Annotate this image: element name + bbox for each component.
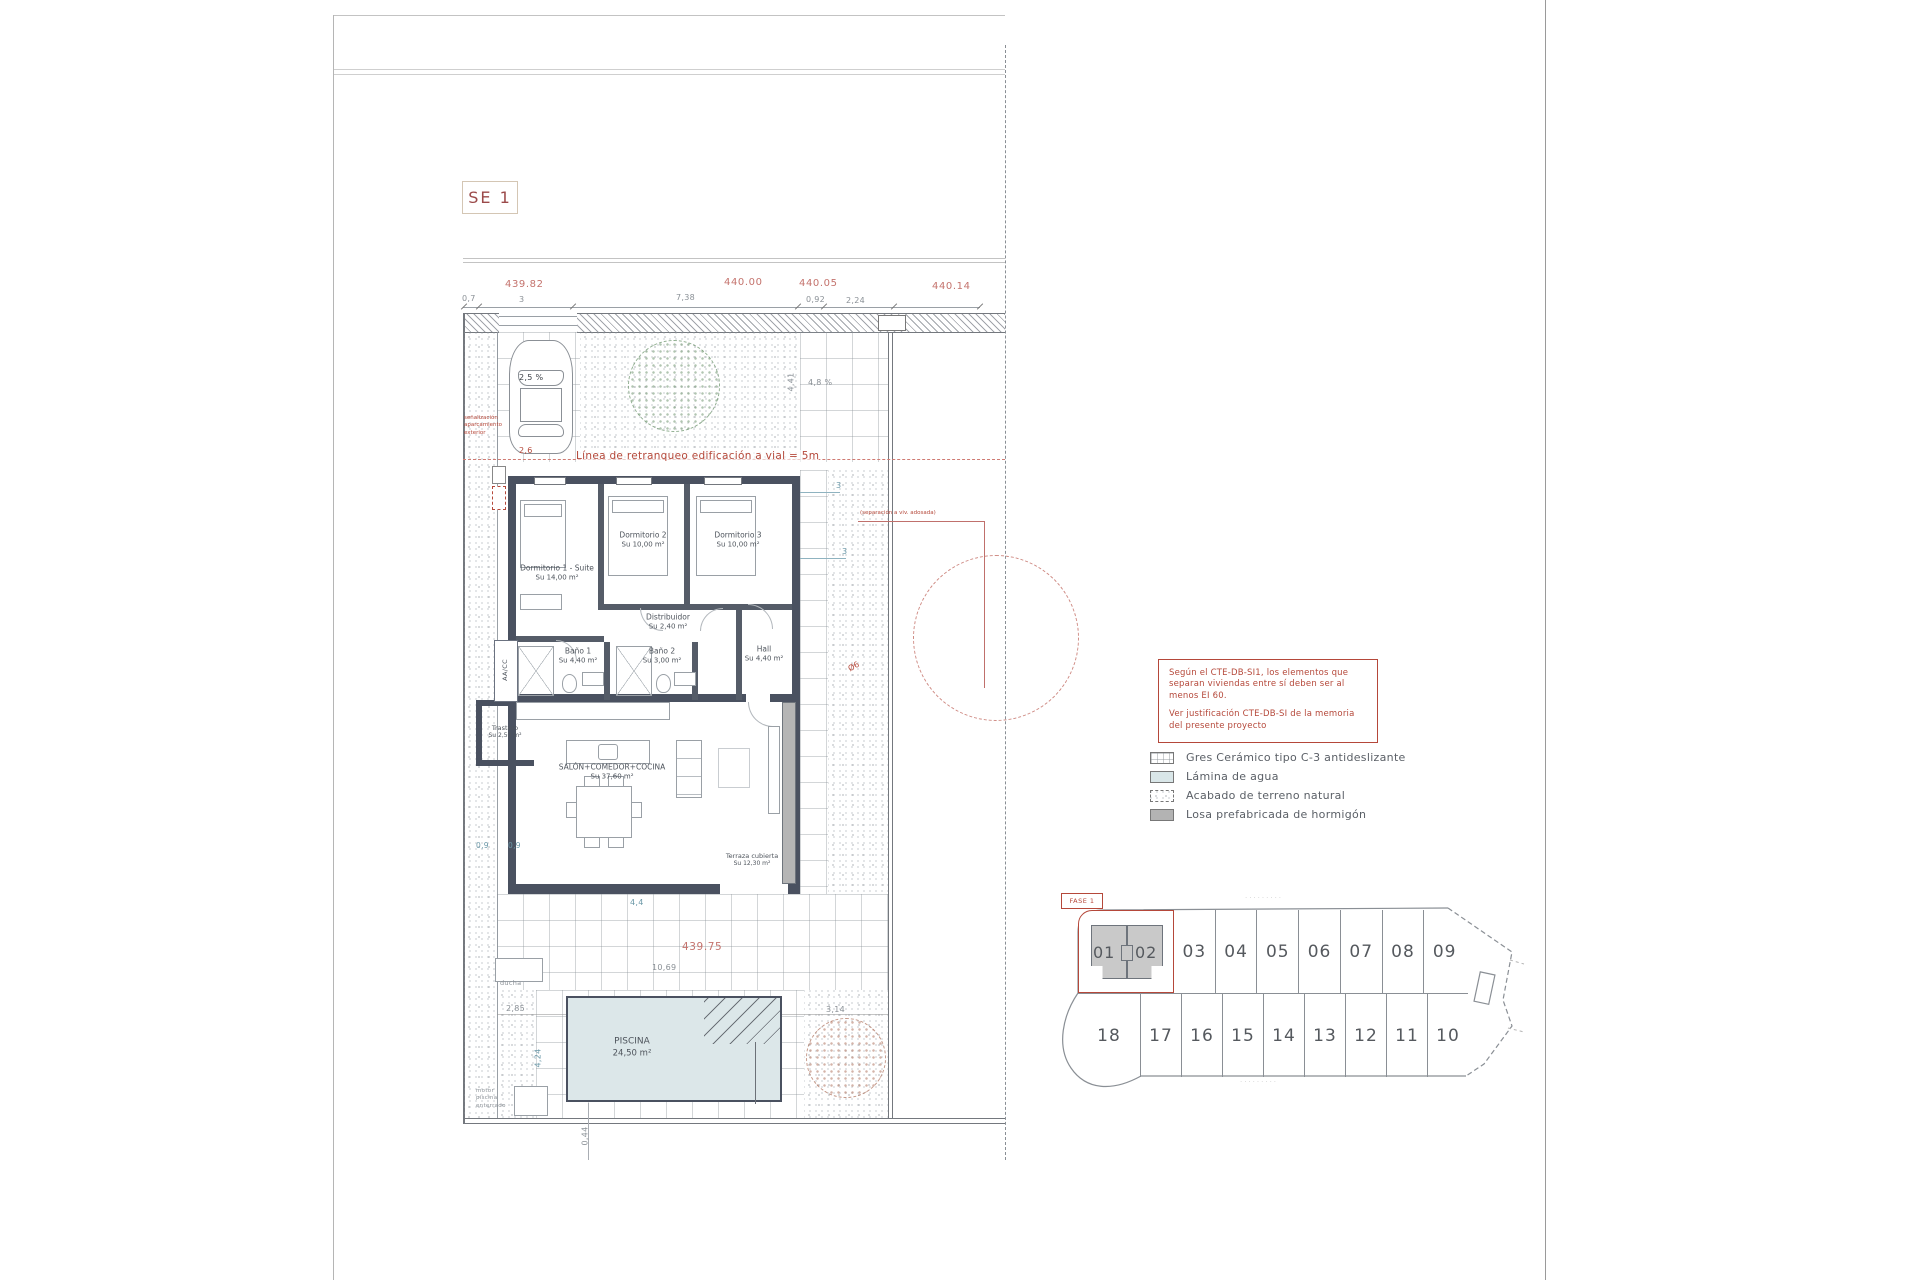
plot-cell: 05 xyxy=(1256,910,1298,993)
plot-cell: 12 xyxy=(1345,994,1386,1077)
room-area: Su 3,00 m² xyxy=(643,656,682,665)
pool-name: PISCINA xyxy=(613,1037,652,1049)
pillow xyxy=(700,500,752,513)
plot-number: 06 xyxy=(1308,942,1332,962)
room-name: Distribuidor xyxy=(646,613,690,623)
side-right-terrain xyxy=(828,470,888,894)
water-swatch-icon xyxy=(1150,771,1174,783)
fase-label: FASE 1 xyxy=(1069,897,1094,905)
dim-tick xyxy=(977,303,983,309)
sheet-left-border xyxy=(333,15,334,1280)
legend-label: Gres Cerámico tipo C-3 antideslizante xyxy=(1186,751,1406,764)
dim-line-3a xyxy=(800,492,840,493)
window xyxy=(616,477,652,485)
house-wall-right-upper xyxy=(792,476,800,702)
room-label-dist: Distribuidor Su 2,40 m² xyxy=(646,613,690,632)
fire-note-box: Según el CTE-DB-SI1, los elementos que s… xyxy=(1158,659,1378,743)
room-label-d3: Dormitorio 3 Su 10,00 m² xyxy=(714,531,761,550)
chair xyxy=(608,837,624,848)
plot-cell: 18 xyxy=(1078,994,1140,1077)
highlighted-plots-01-02: 01 02 xyxy=(1078,910,1174,993)
pool-area: 24,50 m² xyxy=(613,1048,652,1059)
plot-cell: 17 xyxy=(1140,994,1181,1077)
trastero-wall-left xyxy=(476,700,482,766)
slab-swatch-icon xyxy=(1150,809,1174,821)
dim-0-92: 0,92 xyxy=(806,295,825,304)
window xyxy=(704,477,742,485)
drawing-sheet: SE 1 439.82 440.00 440.05 440.14 0,7 3 7… xyxy=(0,0,1920,1280)
level-439-82: 439.82 xyxy=(505,279,544,290)
south-boundary-1 xyxy=(463,1118,1005,1119)
island-sink xyxy=(598,744,618,760)
dim-7-38: 7,38 xyxy=(676,293,695,302)
sofa xyxy=(676,740,702,798)
dim-0-44: 0,44 xyxy=(581,1126,590,1145)
parking-sign-note: señalización aparcamiento exterior xyxy=(464,415,506,437)
pool-dim-line xyxy=(497,1014,566,1015)
upper-double-line-1 xyxy=(463,258,1005,259)
room-label-terraza: Terraza cubierta Su 12,30 m² xyxy=(726,852,778,868)
pool-lane-line xyxy=(755,1042,756,1104)
plot-number: 09 xyxy=(1433,942,1457,962)
house-wall-right-lower xyxy=(796,702,800,894)
sheet-right-border xyxy=(1545,0,1546,1280)
room-name: Dormitorio 1 - Suite xyxy=(520,564,594,574)
south-boundary-2 xyxy=(463,1123,1005,1124)
partition-d1-d2 xyxy=(598,484,604,610)
plot-number: 16 xyxy=(1190,1026,1214,1046)
legend-label: Acabado de terreno natural xyxy=(1186,789,1345,802)
bed xyxy=(520,500,566,568)
road-band-line-2 xyxy=(333,74,1005,75)
terrace-losa-strip xyxy=(782,702,796,884)
room-area: Su 12,30 m² xyxy=(726,860,778,868)
turning-circle xyxy=(913,555,1079,721)
plot-cell: 13 xyxy=(1304,994,1345,1077)
room-name: Baño 1 xyxy=(559,647,598,657)
room-area: Su 4,40 m² xyxy=(745,654,784,663)
car-icon xyxy=(505,338,577,456)
room-area: Su 2,40 m² xyxy=(646,622,690,631)
terrain-swatch-icon xyxy=(1150,790,1174,802)
car-rear-window xyxy=(518,424,564,437)
plot-number: 02 xyxy=(1135,943,1157,962)
rug xyxy=(718,748,750,788)
trastero-wall-bottom xyxy=(476,760,534,766)
legend-label: Lámina de agua xyxy=(1186,770,1279,783)
fase-label-box: FASE 1 xyxy=(1061,893,1103,909)
tree-icon xyxy=(806,1018,886,1098)
plot-cell: 11 xyxy=(1386,994,1427,1077)
driveway-gate xyxy=(499,311,577,333)
room-name: Baño 2 xyxy=(643,647,682,657)
room-label-b1: Baño 1 Su 4,40 m² xyxy=(559,647,598,666)
section-label: SE 1 xyxy=(468,188,512,207)
room-area: Su 10,00 m² xyxy=(619,540,666,549)
dimension-line xyxy=(463,307,980,308)
room-label-trastero: Trastero Su 2,50 m² xyxy=(488,724,521,740)
setback-note: Línea de retranqueo edificación a vial =… xyxy=(576,450,819,462)
basin xyxy=(582,672,604,686)
car-roof xyxy=(520,388,562,422)
partition-d2-d3 xyxy=(684,484,690,610)
room-name: Dormitorio 3 xyxy=(714,531,761,541)
road-band-line-1 xyxy=(333,69,1005,70)
pool-water xyxy=(566,996,782,1102)
room-name: Trastero xyxy=(488,724,521,732)
patio-slope-label: 4,8 % xyxy=(808,378,832,387)
room-area: Su 37,60 m² xyxy=(559,772,666,781)
side-right-paving xyxy=(800,470,828,894)
dim-0-7: 0,7 xyxy=(462,294,476,303)
plot-number: 05 xyxy=(1266,942,1290,962)
room-area: Su 14,00 m² xyxy=(520,573,594,582)
plot-cell: 09 xyxy=(1423,910,1465,993)
dim-0-9-b: 0,9 xyxy=(508,841,521,850)
toilet xyxy=(656,674,671,693)
east-boundary-1 xyxy=(888,332,889,1118)
level-440-05: 440.05 xyxy=(799,278,838,289)
partition-b1 xyxy=(604,642,610,700)
aacc-label: AA/CC xyxy=(501,659,509,681)
plot-cell: 14 xyxy=(1263,994,1304,1077)
tv-unit xyxy=(768,726,780,814)
chair xyxy=(584,837,600,848)
kitchen-counter xyxy=(516,702,670,720)
section-label-box: SE 1 xyxy=(462,181,518,214)
room-name: Hall xyxy=(745,645,784,655)
ducha-label: ducha xyxy=(500,979,521,987)
plot-number: 11 xyxy=(1395,1026,1419,1046)
plot-cell: 15 xyxy=(1222,994,1263,1077)
toilet xyxy=(562,674,577,693)
sheet-top-line xyxy=(333,15,1005,16)
dim-2-85: 2,85 xyxy=(506,1004,525,1013)
dim-2-24: 2,24 xyxy=(846,296,865,305)
plot-cell: 04 xyxy=(1215,910,1257,993)
room-label-d2: Dormitorio 2 Su 10,00 m² xyxy=(619,531,666,550)
separation-line-v xyxy=(984,521,985,688)
level-440-14: 440.14 xyxy=(932,281,971,292)
room-name: SALÓN+COMEDOR+COCINA xyxy=(559,763,666,773)
partition-b2 xyxy=(692,642,698,700)
gres-swatch-icon xyxy=(1150,752,1174,764)
basin xyxy=(674,672,696,686)
east-boundary-2 xyxy=(892,332,893,1118)
door-arc xyxy=(748,702,773,727)
pool-label: PISCINA 24,50 m² xyxy=(613,1037,652,1060)
dim-line-3b xyxy=(800,558,846,559)
dim-4-24: 4,24 xyxy=(534,1048,543,1067)
gate-line xyxy=(499,325,577,326)
chair xyxy=(566,802,577,818)
utility-box xyxy=(492,466,506,484)
plot-number: 04 xyxy=(1224,942,1248,962)
terrace-post-1 xyxy=(708,884,720,894)
fire-note-p2: Ver justificación CTE-DB-SI de la memori… xyxy=(1169,709,1367,732)
room-name: Dormitorio 2 xyxy=(619,531,666,541)
motor-note: motor piscina enterrado xyxy=(476,1088,512,1110)
driveway-slope-label: 2,5 % xyxy=(519,373,543,382)
room-area: Su 2,50 m² xyxy=(488,732,521,740)
wardrobe xyxy=(520,594,562,610)
shower xyxy=(518,646,554,696)
dim-4-41: 4,41 xyxy=(787,372,796,391)
room-label-salon: SALÓN+COMEDOR+COCINA Su 37,60 m² xyxy=(559,763,666,782)
dim-0-9-a: 0,9 xyxy=(476,841,489,850)
room-name: Terraza cubierta xyxy=(726,852,778,860)
plot-cell: 07 xyxy=(1340,910,1382,993)
plot-number: 07 xyxy=(1349,942,1373,962)
dim-3-side-a: 3 xyxy=(836,481,841,490)
utility-box-red xyxy=(492,486,506,510)
plot-number: 15 xyxy=(1231,1026,1255,1046)
legend-label: Losa prefabricada de hormigón xyxy=(1186,808,1366,821)
plot-number: 03 xyxy=(1183,942,1207,962)
room-label-hall: Hall Su 4,40 m² xyxy=(745,645,784,664)
room-area: Su 4,40 m² xyxy=(559,656,598,665)
pool-motor-box xyxy=(514,1086,548,1116)
plot-number: 14 xyxy=(1272,1026,1296,1046)
car-width-dim: 2,6 xyxy=(519,446,533,455)
fire-note-p1: Según el CTE-DB-SI1, los elementos que s… xyxy=(1169,668,1367,702)
dim-3-14: 3,14 xyxy=(826,1005,845,1014)
chair xyxy=(631,802,642,818)
door-arc xyxy=(700,608,723,631)
plot-cell: 16 xyxy=(1181,994,1222,1077)
level-440-00: 440.00 xyxy=(724,277,763,288)
window xyxy=(534,477,566,485)
footprint-connector xyxy=(1121,945,1133,961)
room-area: Su 10,00 m² xyxy=(714,540,761,549)
dim-3-side-b: 3 xyxy=(842,547,847,556)
level-courtyard: 439.75 xyxy=(682,941,722,953)
plot-cell: 03 xyxy=(1174,910,1215,993)
site-plan-bottom-row: 18 17 16 15 14 13 12 11 10 xyxy=(1078,993,1468,1077)
dining-table xyxy=(576,786,632,838)
plot-number: 08 xyxy=(1391,942,1415,962)
plot-number: 18 xyxy=(1097,1026,1121,1046)
plot-number: 12 xyxy=(1354,1026,1378,1046)
separation-line-h xyxy=(858,521,984,522)
dim-10-69: 10,69 xyxy=(652,963,676,972)
gate-line xyxy=(499,316,577,317)
house-wall-bottom xyxy=(508,884,708,894)
dim-4-4: 4,4 xyxy=(630,898,644,907)
house-wall-mid-2 xyxy=(770,694,800,702)
separation-note: (separación a viv. adosada) xyxy=(860,510,936,516)
front-right-paving xyxy=(800,332,888,462)
pillow xyxy=(524,504,562,517)
room-label-d1: Dormitorio 1 - Suite Su 14,00 m² xyxy=(520,564,594,583)
plot-number: 17 xyxy=(1149,1026,1173,1046)
plot-number: 01 xyxy=(1093,943,1115,962)
site-plan-top-row: 03 04 05 06 07 08 09 xyxy=(1174,910,1465,993)
room-label-b2: Baño 2 Su 3,00 m² xyxy=(643,647,682,666)
plot-number: 10 xyxy=(1436,1026,1460,1046)
plot-cell: 08 xyxy=(1382,910,1424,993)
tree-icon xyxy=(628,340,720,432)
plot-cell: 10 xyxy=(1427,994,1468,1077)
pool-steps xyxy=(704,998,780,1044)
pillow xyxy=(612,500,664,513)
dim-3-top: 3 xyxy=(519,295,524,304)
partition-hall xyxy=(736,610,742,700)
plot-number: 13 xyxy=(1313,1026,1337,1046)
wall-meter-box xyxy=(878,315,906,331)
plot-cell: 06 xyxy=(1298,910,1340,993)
pool-dim-line xyxy=(782,1014,888,1015)
upper-double-line-2 xyxy=(463,262,1005,263)
